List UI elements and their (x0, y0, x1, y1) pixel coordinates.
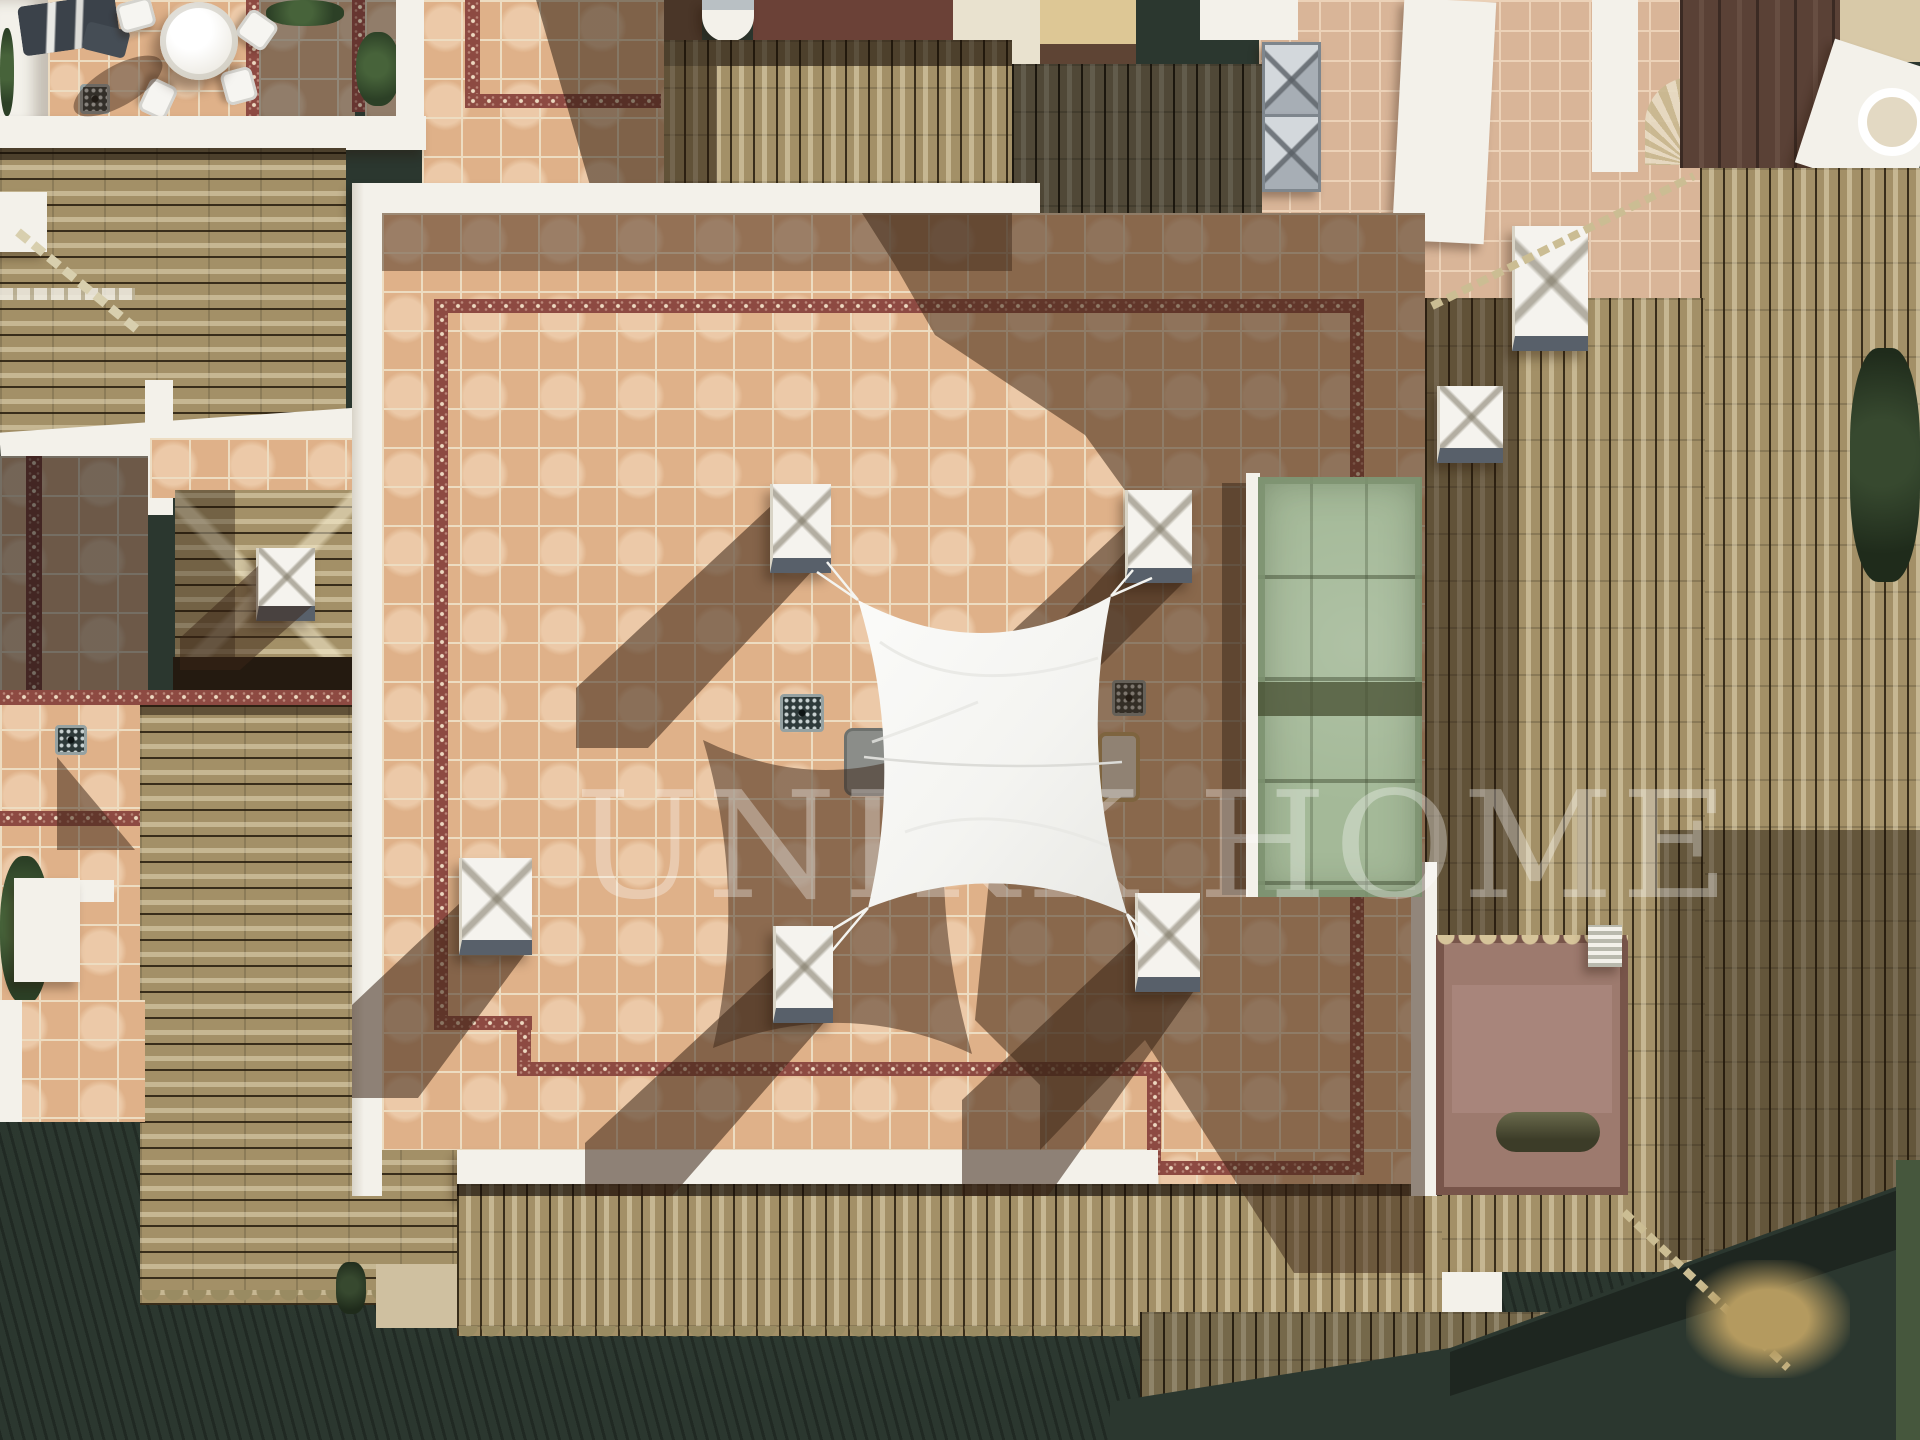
aerial-photo: UNIKK HOME (0, 0, 1920, 1440)
shade-sail (858, 596, 1127, 914)
sail-layer (0, 0, 1920, 1440)
